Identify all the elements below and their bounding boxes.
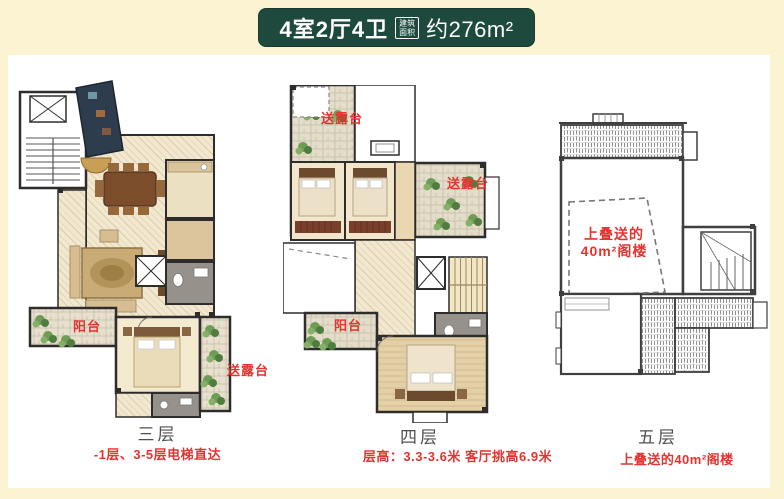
corridor [395, 162, 415, 240]
terrace [200, 317, 230, 411]
bedroom-a [291, 162, 345, 240]
stairs [449, 257, 487, 313]
area-badge-line2: 面积 [399, 28, 415, 37]
floor-note-5f: 上叠送的40m²阁楼 [557, 449, 784, 468]
layout-title: 4室2厅4卫 [279, 12, 388, 44]
label-attic-line2: 40m²阁楼 [581, 243, 648, 259]
master-bedroom [377, 336, 487, 412]
area-badge-line1: 建筑 [399, 19, 415, 28]
elevator [136, 256, 166, 286]
floor-name-3f: 三层 [30, 420, 285, 445]
label-attic-line1: 上叠送的 [584, 226, 644, 242]
floor-plan-5f [545, 112, 773, 412]
floor-plan-4f-drawing [283, 85, 515, 423]
lower-room [556, 294, 641, 374]
label-attic-5f: 上叠送的 40m²阁楼 [558, 226, 670, 260]
roof-top [559, 114, 697, 160]
bedroom [116, 317, 200, 393]
bathroom-right [166, 262, 214, 304]
header-banner: 4室2厅4卫 建筑面积 约276m² [258, 8, 535, 47]
label-balcony-3f: 阳台 [73, 316, 101, 335]
stairwell [20, 92, 86, 188]
floorplan-page: 4室2厅4卫 建筑面积 约276m² [0, 0, 784, 499]
void-over-living [283, 243, 355, 313]
entry-mat [413, 412, 447, 423]
bathroom-bottom [152, 393, 200, 417]
label-balcony-4f: 阳台 [334, 315, 362, 334]
floor-note-4f: 层高：3.3-3.6米 客厅挑高6.9米 [335, 446, 580, 465]
stairwell [701, 232, 751, 290]
landing [355, 85, 415, 162]
floor-plan-4f [283, 85, 515, 423]
study-room [166, 220, 214, 260]
bedroom-b [345, 162, 395, 240]
floor-name-5f: 五层 [540, 423, 776, 448]
label-terrace-top-4f: 送露台 [321, 108, 363, 127]
kitchen-room [166, 160, 214, 218]
floor-note-3f: -1层、3-5层电梯直达 [30, 444, 285, 463]
floor-plan-5f-drawing [545, 112, 773, 412]
elevator [417, 257, 445, 289]
label-terrace-right-4f: 送露台 [447, 173, 489, 192]
roof-lower [641, 298, 767, 374]
area-value: 约276m² [426, 12, 513, 44]
floor-name-4f: 四层 [300, 423, 540, 448]
area-badge: 建筑面积 [395, 17, 419, 39]
label-terrace-3f: 送露台 [227, 360, 269, 379]
